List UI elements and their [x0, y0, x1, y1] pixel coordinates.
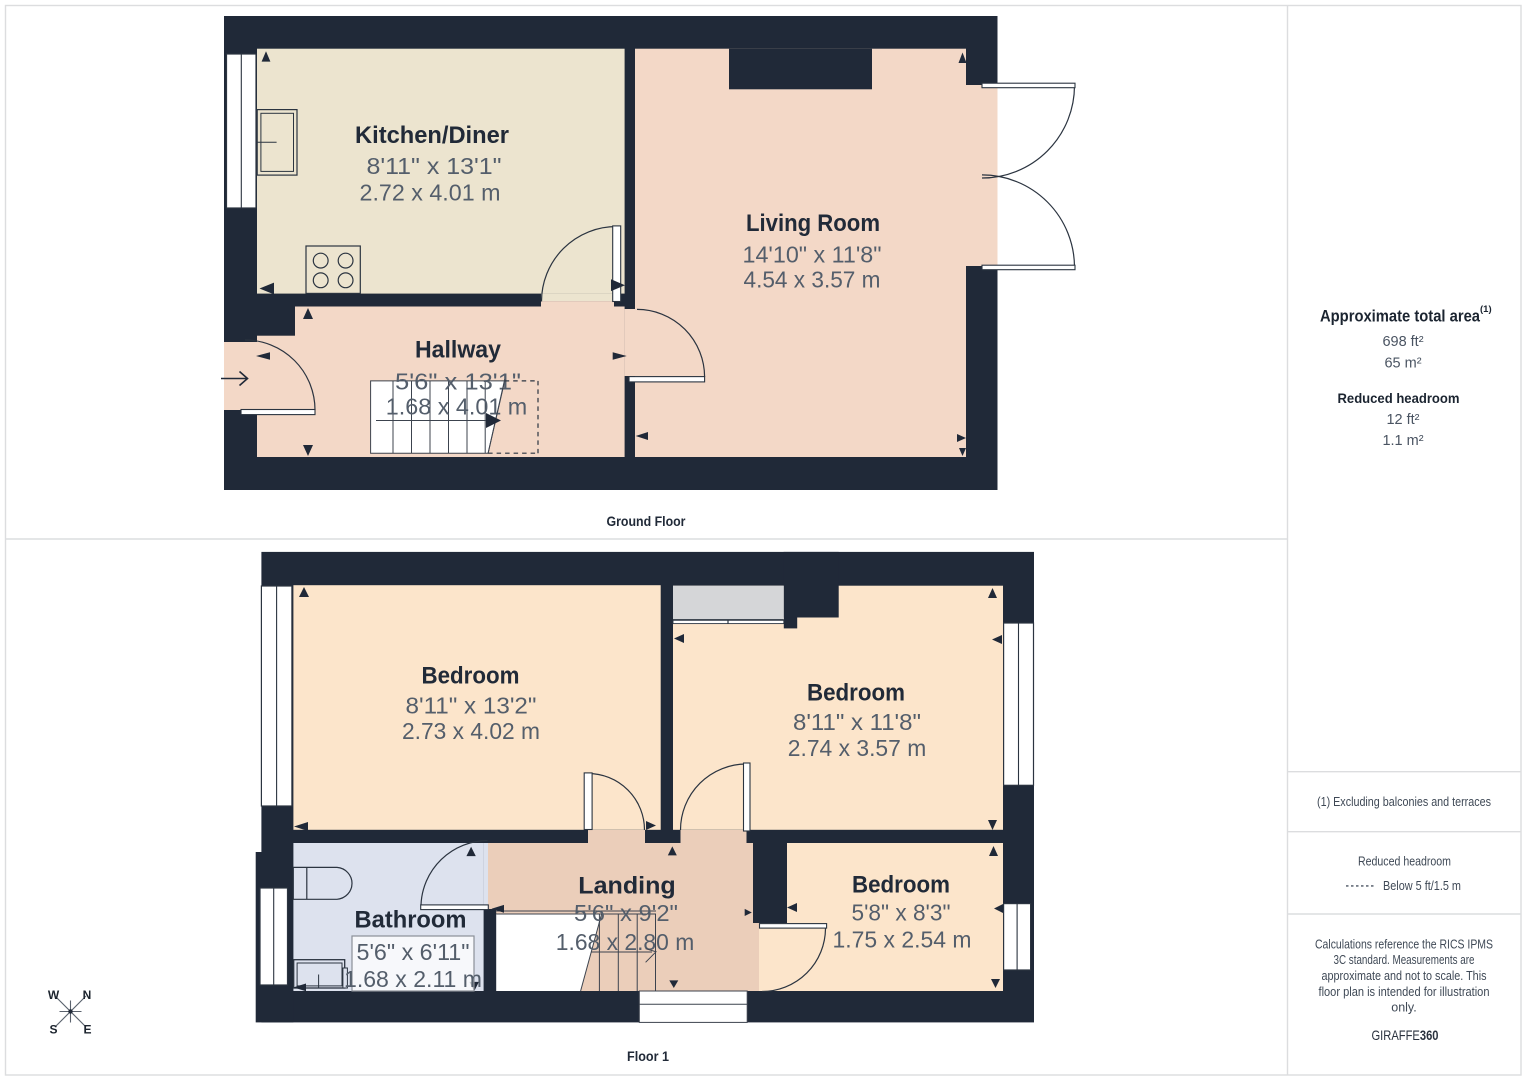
svg-text:(1) Excluding balconies and te: (1) Excluding balconies and terraces	[1317, 795, 1491, 809]
svg-text:1.68 x 2.11 m: 1.68 x 2.11 m	[344, 966, 482, 992]
svg-text:8'11" x 11'8": 8'11" x 11'8"	[793, 709, 921, 735]
svg-text:Floor 1: Floor 1	[627, 1049, 669, 1064]
svg-text:N: N	[83, 988, 92, 1002]
svg-text:GIRAFFE360: GIRAFFE360	[1372, 1027, 1439, 1043]
svg-text:(1): (1)	[1480, 304, 1492, 315]
svg-text:Approximate total area: Approximate total area	[1320, 307, 1480, 326]
svg-text:Hallway: Hallway	[415, 337, 501, 364]
svg-text:12 ft²: 12 ft²	[1386, 412, 1419, 428]
svg-text:5'8" x 8'3": 5'8" x 8'3"	[852, 900, 951, 926]
svg-text:Ground Floor: Ground Floor	[607, 514, 687, 529]
svg-text:2.74 x 3.57 m: 2.74 x 3.57 m	[788, 735, 927, 761]
svg-text:5'6" x 6'11": 5'6" x 6'11"	[357, 939, 470, 965]
svg-text:1.68 x 4.01 m: 1.68 x 4.01 m	[386, 394, 528, 420]
svg-text:14'10" x 11'8": 14'10" x 11'8"	[743, 242, 882, 268]
svg-text:Bedroom: Bedroom	[807, 680, 905, 707]
svg-text:2.72 x 4.01 m: 2.72 x 4.01 m	[360, 180, 501, 206]
svg-text:5'6" x 9'2": 5'6" x 9'2"	[574, 900, 678, 926]
svg-text:W: W	[48, 988, 60, 1002]
svg-text:Landing: Landing	[578, 873, 676, 900]
svg-text:8'11" x 13'2": 8'11" x 13'2"	[406, 693, 537, 719]
svg-text:3C standard. Measurements are: 3C standard. Measurements are	[1334, 953, 1475, 967]
svg-text:1.75 x 2.54 m: 1.75 x 2.54 m	[833, 927, 972, 953]
svg-text:floor plan is intended for ill: floor plan is intended for illustration	[1319, 985, 1490, 999]
svg-text:Bathroom: Bathroom	[355, 907, 467, 934]
svg-text:approximate and not to scale.: approximate and not to scale. This	[1322, 969, 1487, 983]
svg-text:8'11" x 13'1": 8'11" x 13'1"	[367, 153, 502, 179]
svg-text:1.68 x 2.80 m: 1.68 x 2.80 m	[556, 929, 695, 955]
svg-text:S: S	[49, 1023, 57, 1037]
svg-text:only.: only.	[1391, 1001, 1416, 1015]
svg-text:Bedroom: Bedroom	[422, 663, 520, 690]
svg-text:1.1 m²: 1.1 m²	[1382, 433, 1423, 449]
svg-text:E: E	[83, 1023, 91, 1037]
svg-text:Bedroom: Bedroom	[852, 872, 950, 899]
svg-text:Calculations reference the RIC: Calculations reference the RICS IPMS	[1315, 937, 1493, 951]
svg-text:2.73 x 4.02 m: 2.73 x 4.02 m	[402, 718, 540, 744]
svg-text:698 ft²: 698 ft²	[1382, 334, 1423, 350]
svg-text:65 m²: 65 m²	[1384, 356, 1421, 372]
svg-text:Kitchen/Diner: Kitchen/Diner	[355, 122, 509, 149]
svg-text:4.54 x 3.57 m: 4.54 x 3.57 m	[744, 267, 881, 293]
svg-text:Reduced headroom: Reduced headroom	[1338, 390, 1460, 406]
svg-text:Below 5 ft/1.5 m: Below 5 ft/1.5 m	[1383, 879, 1461, 893]
svg-text:Reduced headroom: Reduced headroom	[1358, 855, 1451, 869]
svg-text:Living Room: Living Room	[746, 210, 880, 237]
